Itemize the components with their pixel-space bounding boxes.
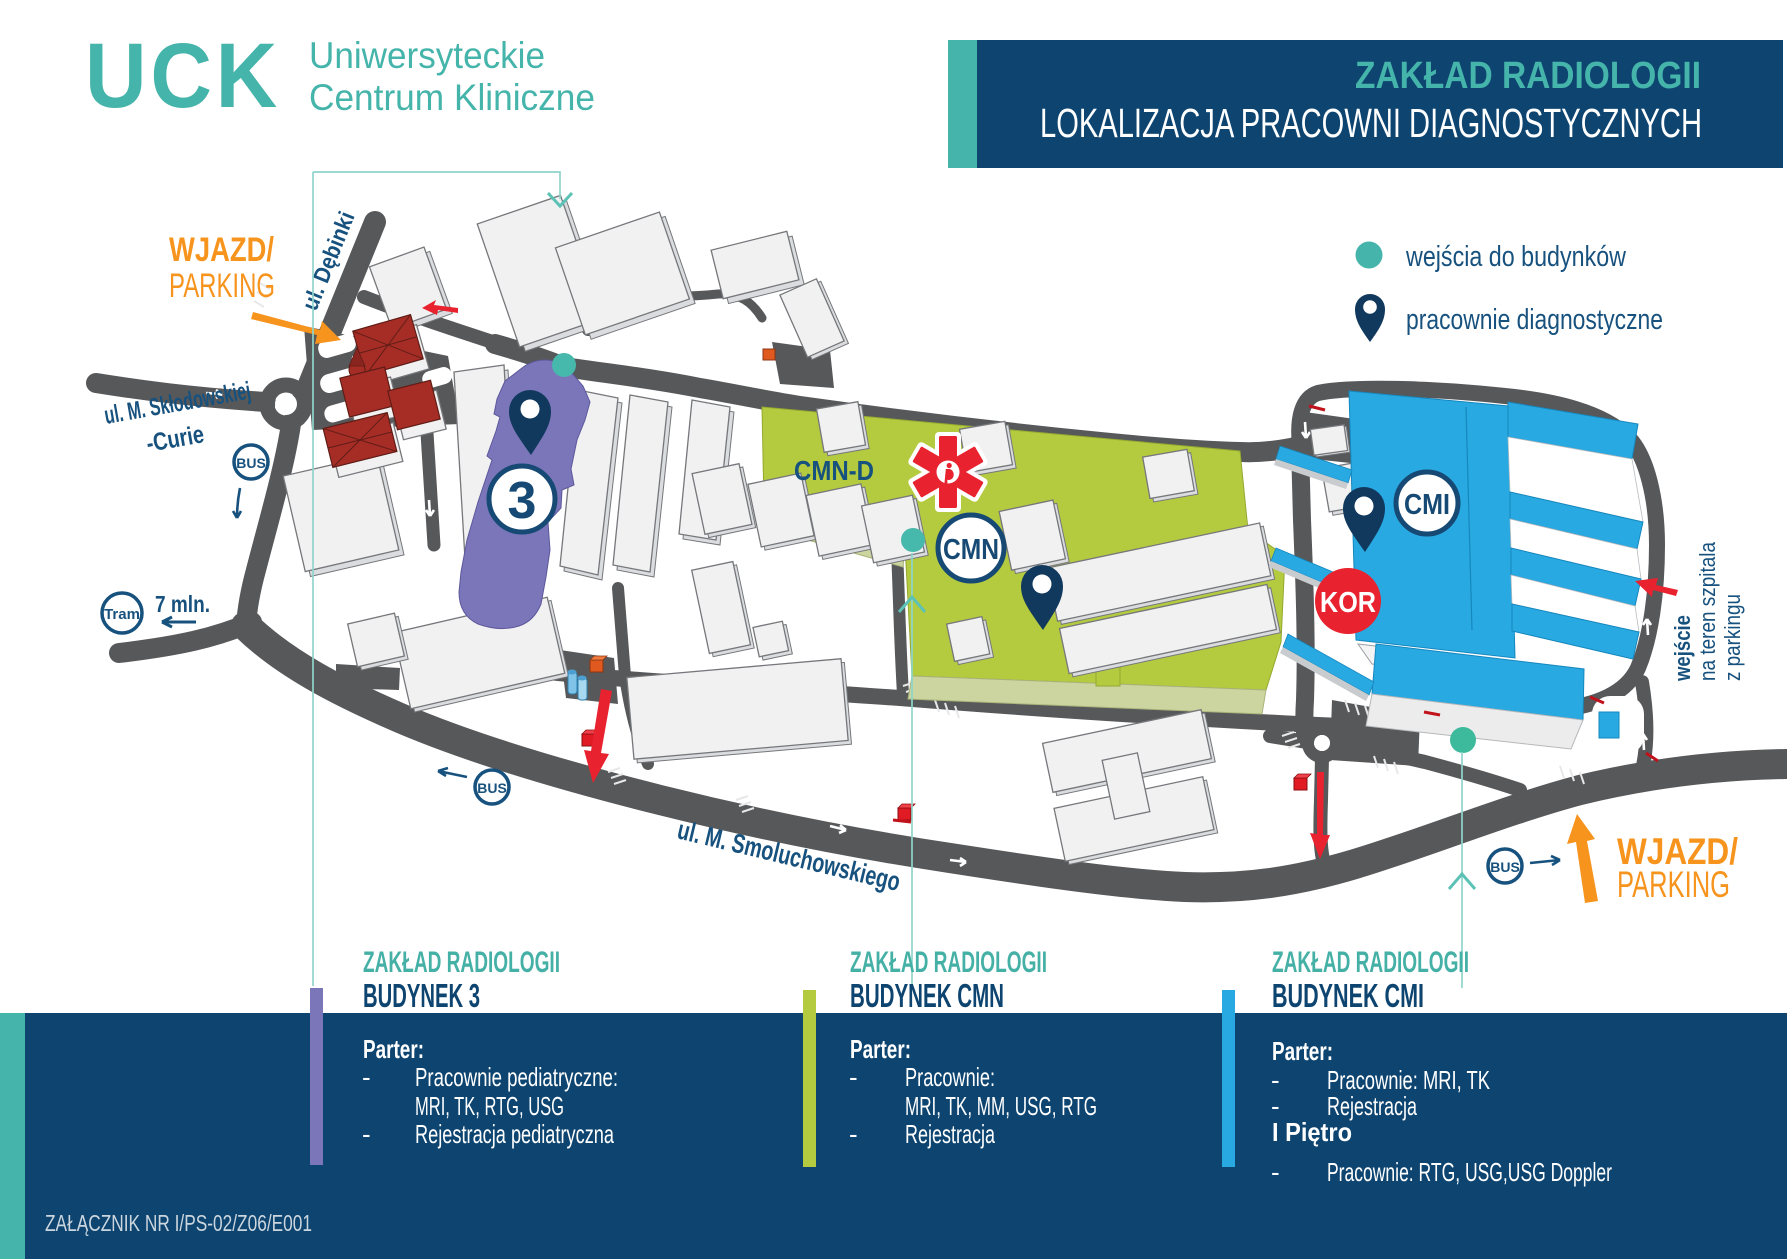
svg-text:ZAKŁAD RADIOLOGII: ZAKŁAD RADIOLOGII (1355, 55, 1701, 97)
svg-text:Centrum Kliniczne: Centrum Kliniczne (309, 77, 595, 118)
svg-text:I Piętro: I Piętro (1272, 1117, 1352, 1147)
svg-text:Parter:: Parter: (363, 1034, 424, 1064)
svg-text:-: - (362, 1119, 371, 1149)
svg-text:ZAKŁAD RADIOLOGII: ZAKŁAD RADIOLOGII (850, 946, 1047, 979)
svg-text:Pracownie:: Pracownie: (905, 1062, 995, 1092)
svg-text:z parkingu: z parkingu (1720, 594, 1745, 681)
svg-text:na teren szpitala: na teren szpitala (1695, 541, 1720, 681)
svg-text:Tram: Tram (104, 606, 140, 623)
svg-text:BUS: BUS (1490, 859, 1520, 875)
svg-text:Rejestracja: Rejestracja (905, 1119, 995, 1149)
svg-text:BUDYNEK CMI: BUDYNEK CMI (1272, 977, 1424, 1014)
svg-text:CMI: CMI (1404, 489, 1450, 521)
svg-text:pracownie diagnostyczne: pracownie diagnostyczne (1406, 304, 1663, 336)
svg-text:WJAZD/: WJAZD/ (169, 231, 274, 269)
svg-text:MRI, TK, RTG, USG: MRI, TK, RTG, USG (415, 1091, 564, 1121)
svg-text:-: - (362, 1062, 371, 1092)
svg-text:BUS: BUS (236, 455, 266, 471)
svg-text:ZAKŁAD RADIOLOGII: ZAKŁAD RADIOLOGII (363, 946, 560, 979)
svg-text:PARKING: PARKING (169, 267, 275, 305)
svg-text:MRI, TK, MM, USG, RTG: MRI, TK, MM, USG, RTG (905, 1091, 1097, 1121)
svg-text:UCK: UCK (85, 25, 281, 127)
svg-text:Parter:: Parter: (1272, 1036, 1333, 1066)
svg-text:BUS: BUS (477, 780, 507, 796)
svg-text:Rejestracja pediatryczna: Rejestracja pediatryczna (415, 1119, 614, 1149)
svg-text:KOR: KOR (1320, 587, 1376, 619)
svg-text:Pracownie pediatryczne:: Pracownie pediatryczne: (415, 1062, 618, 1092)
svg-text:Pracownie: RTG, USG,USG Dopple: Pracownie: RTG, USG,USG Doppler (1327, 1157, 1612, 1187)
svg-text:Parter:: Parter: (850, 1034, 911, 1064)
svg-text:wejścia do budynków: wejścia do budynków (1405, 241, 1627, 273)
svg-text:BUDYNEK 3: BUDYNEK 3 (363, 977, 480, 1014)
svg-text:CMN: CMN (943, 534, 999, 566)
svg-text:LOKALIZACJA PRACOWNI DIAGNOSTY: LOKALIZACJA PRACOWNI DIAGNOSTYCZNYCH (1040, 100, 1702, 146)
svg-text:PARKING: PARKING (1617, 864, 1730, 905)
svg-text:ZAŁĄCZNIK NR I/PS-02/Z06/E001: ZAŁĄCZNIK NR I/PS-02/Z06/E001 (45, 1210, 312, 1236)
svg-text:-: - (849, 1062, 858, 1092)
svg-text:CMN-D: CMN-D (794, 455, 874, 486)
svg-text:3: 3 (508, 472, 537, 530)
svg-text:-: - (849, 1119, 858, 1149)
svg-text:Uniwersyteckie: Uniwersyteckie (309, 35, 545, 76)
svg-text:BUDYNEK CMN: BUDYNEK CMN (850, 977, 1004, 1014)
svg-text:ZAKŁAD RADIOLOGII: ZAKŁAD RADIOLOGII (1272, 946, 1469, 979)
svg-text:-: - (1271, 1157, 1280, 1187)
svg-text:7 mln.: 7 mln. (155, 591, 210, 617)
svg-text:wejście: wejście (1670, 615, 1695, 682)
